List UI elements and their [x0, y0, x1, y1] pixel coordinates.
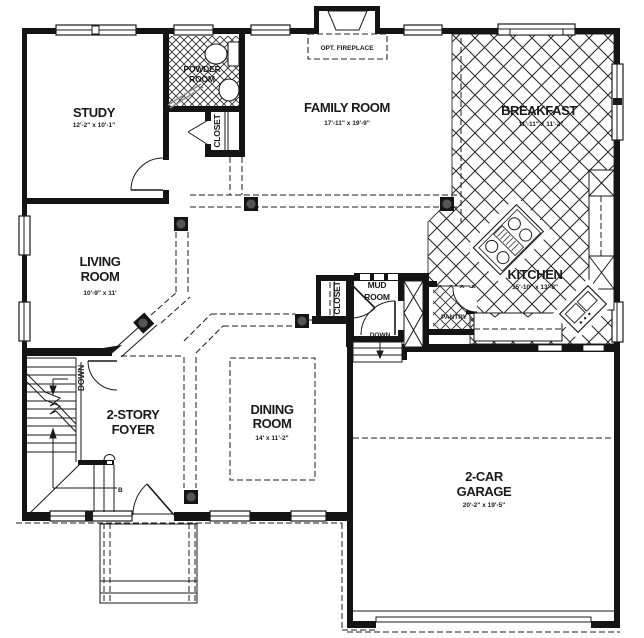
svg-text:ROOM: ROOM	[81, 269, 120, 284]
svg-text:11'-11" x 11'-2": 11'-11" x 11'-2"	[518, 121, 563, 128]
svg-text:2-CAR: 2-CAR	[465, 469, 504, 484]
svg-text:ROOM: ROOM	[364, 292, 390, 302]
svg-text:OPT. FIREPLACE: OPT. FIREPLACE	[320, 45, 374, 52]
svg-text:FOYER: FOYER	[112, 422, 156, 437]
svg-text:GARAGE: GARAGE	[457, 484, 512, 499]
svg-text:14' x 11'-2": 14' x 11'-2"	[255, 435, 288, 442]
svg-text:12'-2" x 10'-1": 12'-2" x 10'-1"	[73, 122, 116, 129]
svg-text:ROOM: ROOM	[189, 74, 215, 84]
svg-text:MUD: MUD	[368, 280, 387, 290]
svg-text:2-STORY: 2-STORY	[107, 407, 161, 422]
svg-text:STUDY: STUDY	[73, 105, 116, 120]
svg-text:PANTRY: PANTRY	[441, 314, 468, 321]
svg-text:LIVING: LIVING	[80, 254, 121, 269]
svg-text:DINING: DINING	[250, 402, 293, 417]
svg-text:B: B	[118, 487, 123, 494]
svg-text:17'-11" x 19'-9": 17'-11" x 19'-9"	[324, 120, 370, 127]
svg-text:10'-9" x 11': 10'-9" x 11'	[83, 290, 117, 297]
svg-text:CLOSET: CLOSET	[212, 113, 222, 147]
svg-text:CLOSET: CLOSET	[332, 280, 342, 314]
svg-text:20'-2" x 19'-5": 20'-2" x 19'-5"	[463, 502, 506, 509]
svg-text:KITCHEN: KITCHEN	[508, 267, 563, 282]
svg-text:FAMILY ROOM: FAMILY ROOM	[304, 100, 390, 115]
svg-text:DOWN: DOWN	[370, 332, 391, 339]
svg-text:BREAKFAST: BREAKFAST	[501, 103, 577, 118]
svg-text:ROOM: ROOM	[253, 416, 292, 431]
svg-text:DOWN: DOWN	[76, 365, 86, 391]
svg-text:15'-10" x 13'-8": 15'-10" x 13'-8"	[512, 284, 558, 291]
svg-text:POWDER: POWDER	[183, 64, 220, 74]
